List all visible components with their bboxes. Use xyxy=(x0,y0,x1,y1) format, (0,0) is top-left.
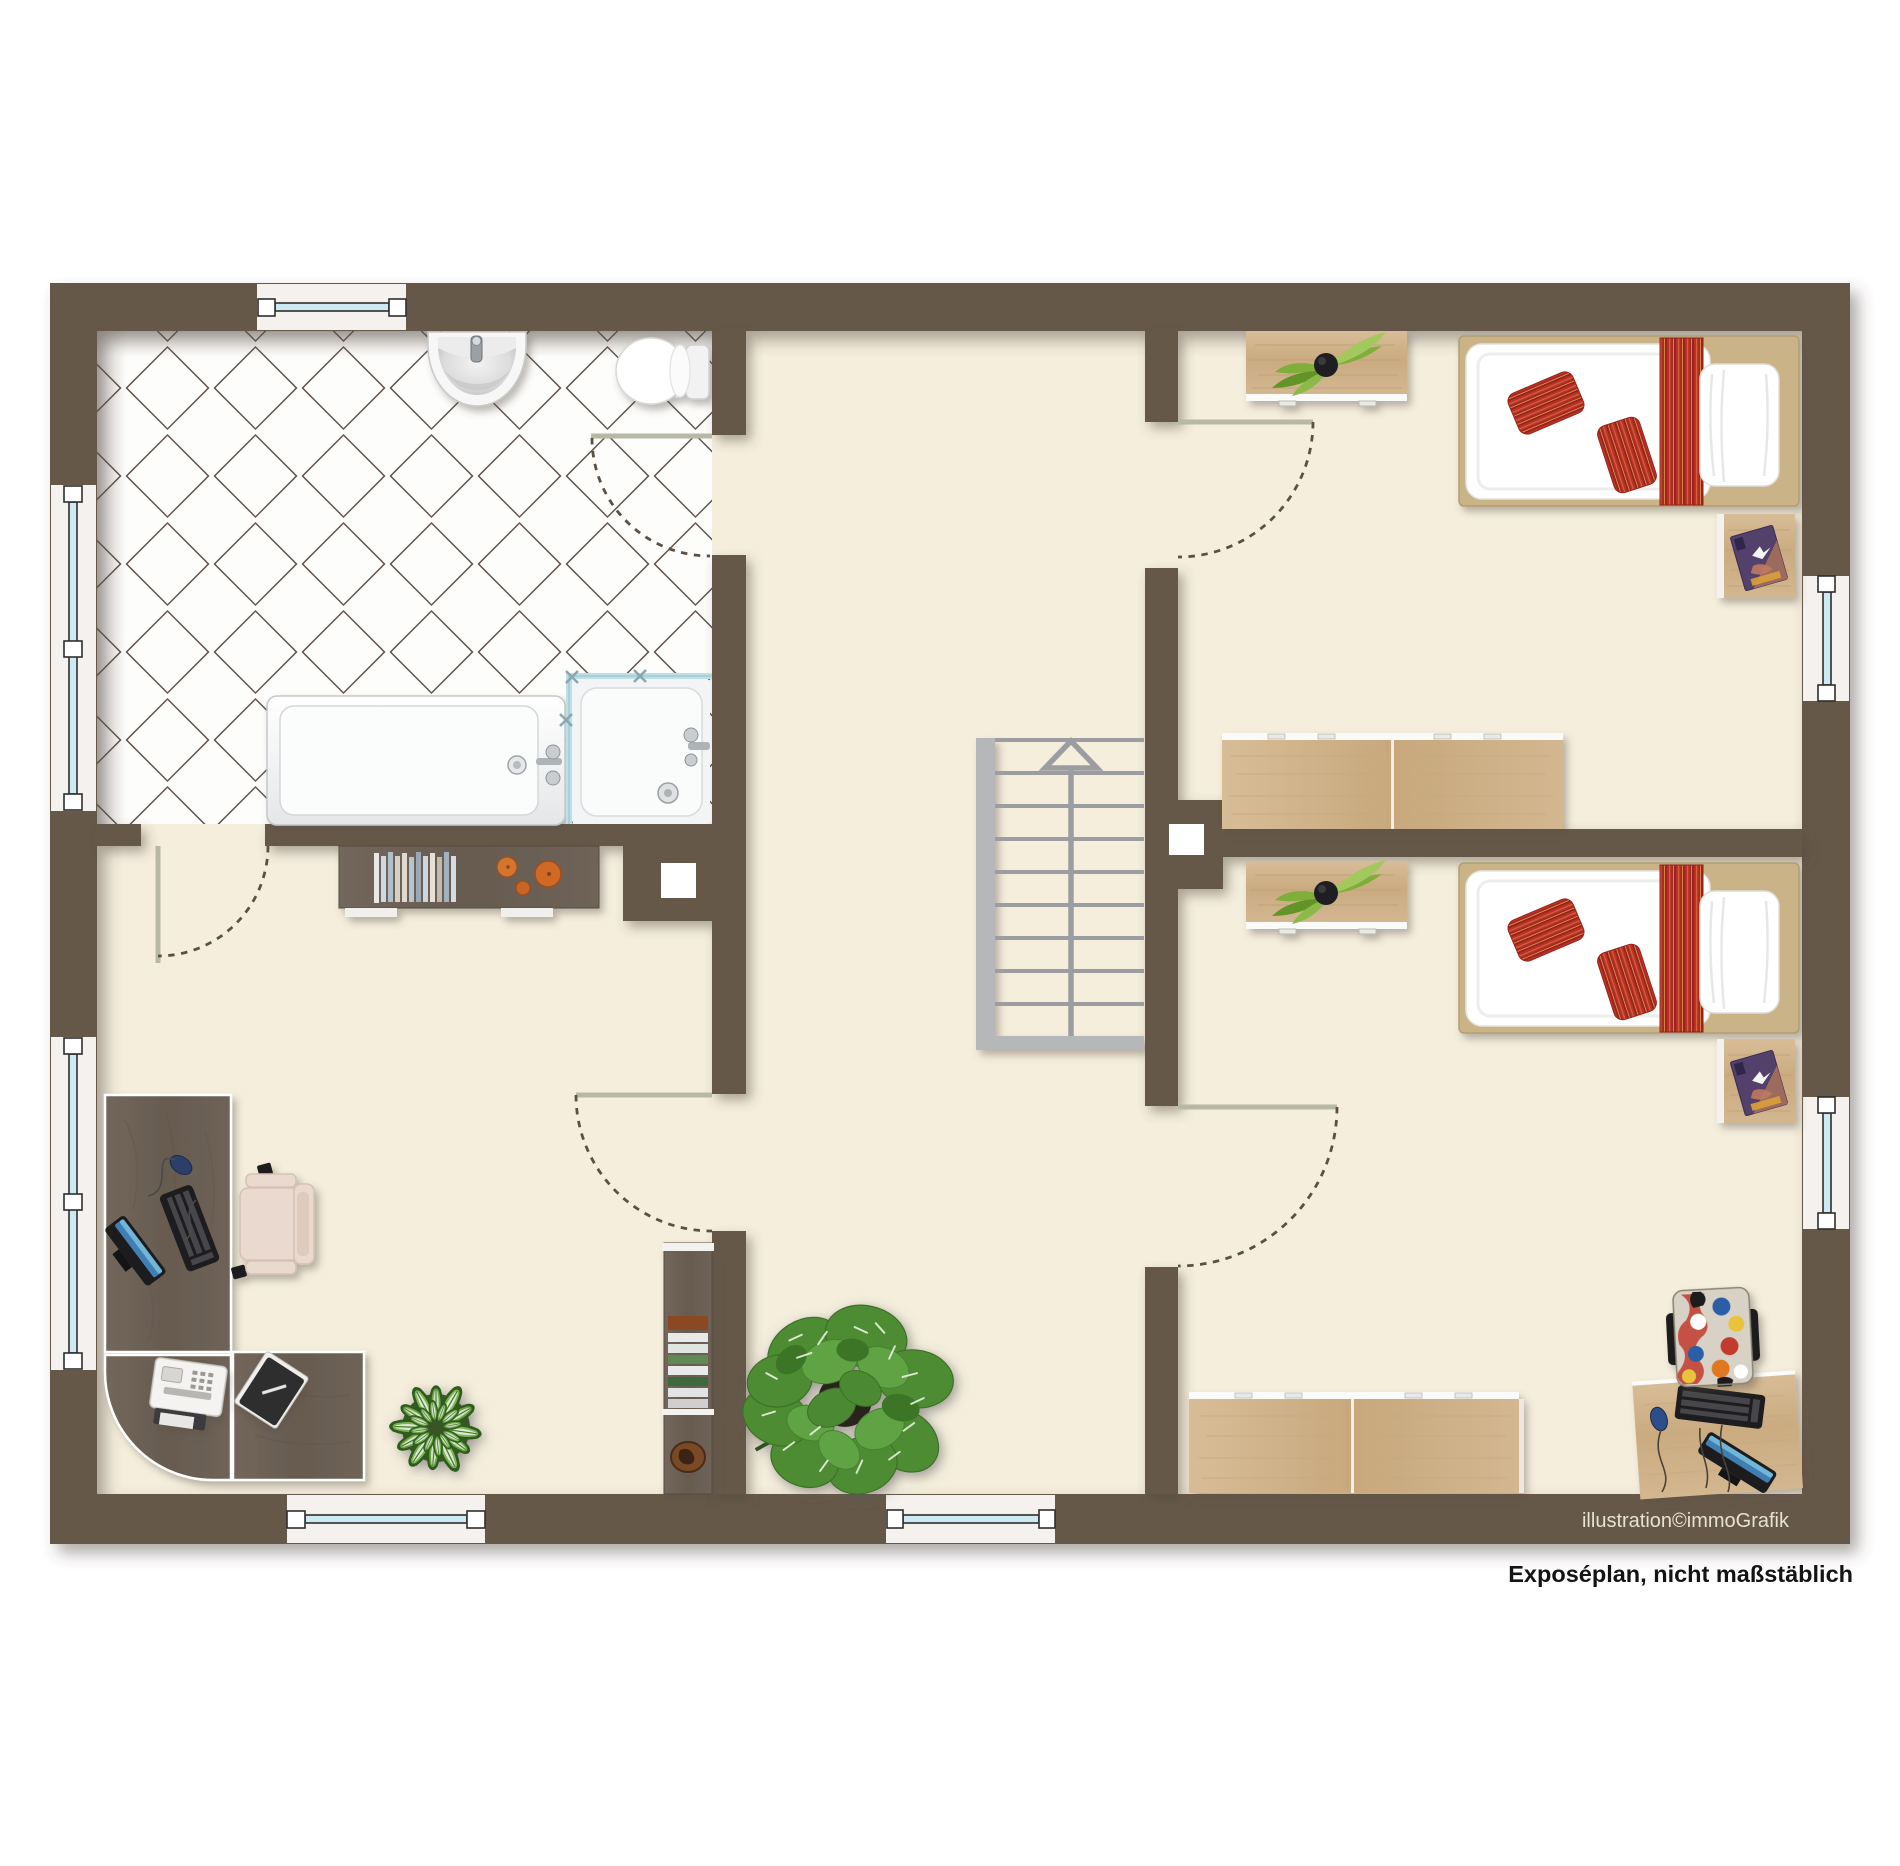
svg-text:Exposéplan, nicht maßstäblich: Exposéplan, nicht maßstäblich xyxy=(1508,1561,1853,1587)
svg-text:illustration©immoGrafik: illustration©immoGrafik xyxy=(1582,1510,1790,1532)
